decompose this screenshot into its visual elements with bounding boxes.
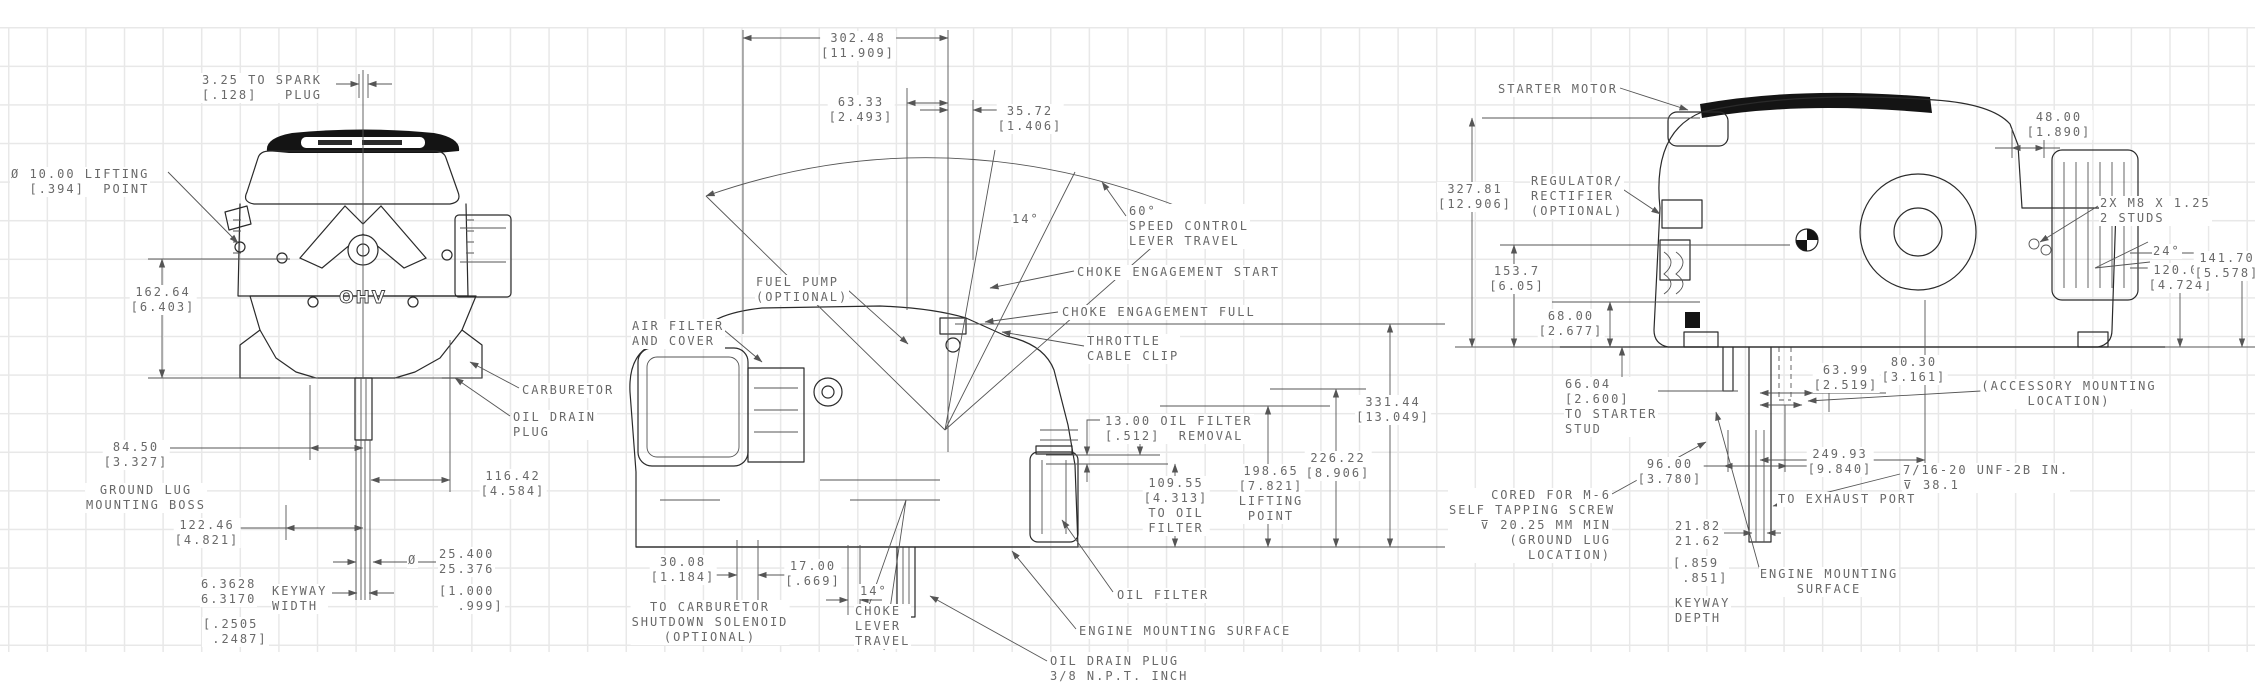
dim-30-08: 30.08 [1.184] — [650, 555, 717, 585]
diameter-symbol: Ø — [407, 553, 418, 568]
dim-lifting-point: Ø 10.00 LIFTING [.394] POINT — [10, 167, 150, 197]
dim-keyway-depth-mm: 21.82 21.62 — [1674, 519, 1722, 549]
dim-35-72: 35.72 [1.406] — [997, 104, 1064, 134]
dim-spark-plug: 3.25 TO SPARK [.128] PLUG — [201, 73, 323, 103]
label-choke-engagement-full: CHOKE ENGAGEMENT FULL — [1061, 305, 1257, 320]
angle-24: 24° — [2152, 244, 2182, 259]
dim-198-65: 198.65 [7.821] LIFTING POINT — [1238, 464, 1305, 524]
angle-14-top: 14° — [1011, 212, 1041, 227]
label-to-exhaust-port: TO EXHAUST PORT — [1777, 492, 1917, 507]
dim-48-00: 48.00 [1.890] — [2026, 110, 2093, 140]
label-keyway-width: KEYWAY WIDTH — [271, 584, 328, 614]
dim-226-22: 226.22 [8.906] — [1305, 451, 1372, 481]
ohv-badge: OHV — [339, 288, 387, 308]
dim-302-48: 302.48 [11.909] — [820, 31, 896, 61]
dim-122-46: 122.46 [4.821] — [174, 518, 241, 548]
dim-162-64: 162.64 [6.403] — [130, 285, 197, 315]
label-air-filter-cover: AIR FILTER AND COVER — [631, 319, 725, 349]
label-oil-filter: OIL FILTER — [1116, 588, 1210, 603]
label-choke-engagement-start: CHOKE ENGAGEMENT START — [1076, 265, 1281, 280]
dim-80-30: 80.30 [3.161] — [1881, 355, 1948, 385]
dim-63-33: 63.33 [2.493] — [828, 95, 895, 125]
dim-331-44: 331.44 [13.049] — [1355, 395, 1431, 425]
label-engine-mounting-surface-middle: ENGINE MOUNTING SURFACE — [1078, 624, 1292, 639]
dim-keyway-depth-in: [.859 .851] — [1672, 556, 1729, 586]
label-accessory-mounting: (ACCESSORY MOUNTING LOCATION) — [1980, 379, 2157, 409]
label-engine-mounting-surface-right: ENGINE MOUNTING SURFACE — [1759, 567, 1899, 597]
label-speed-control-travel: 60° SPEED CONTROL LEVER TRAVEL — [1128, 204, 1250, 249]
dim-96-00: 96.00 [3.780] — [1637, 457, 1704, 487]
angle-14-bottom: 14° — [859, 584, 889, 599]
label-oil-drain-plug-left: OIL DRAIN PLUG — [512, 410, 597, 440]
dim-oil-filter-removal: 13.00 OIL FILTER [.512] REMOVAL — [1104, 414, 1254, 444]
dim-153-7: 153.7 [6.05] — [1488, 264, 1545, 294]
label-oil-drain-plug-middle: OIL DRAIN PLUG 3/8 N.P.T. INCH — [1049, 654, 1189, 684]
label-unf-tapped-hole: 7/16-20 UNF-2B IN. ⊽ 38.1 — [1902, 463, 2070, 493]
label-m8-studs: 2X M8 X 1.25 2 STUDS — [2099, 196, 2212, 226]
middle-view-art — [630, 306, 1078, 640]
label-cored-m6-screw: CORED FOR M-6 SELF TAPPING SCREW ⊽ 20.25… — [1448, 488, 1612, 563]
dim-keyway-width-in: [.2505 .2487] — [202, 617, 269, 647]
label-carburetor: CARBURETOR — [521, 383, 615, 398]
dim-249-93: 249.93 [9.840] — [1807, 447, 1874, 477]
drawing-sheet: OHV — [0, 0, 2255, 700]
label-regulator-rectifier: REGULATOR/ RECTIFIER (OPTIONAL) — [1530, 174, 1624, 219]
dim-63-99: 63.99 [2.519] — [1813, 363, 1880, 393]
dim-327-81: 327.81 [12.906] — [1437, 182, 1513, 212]
label-throttle-cable-clip: THROTTLE CABLE CLIP — [1086, 334, 1180, 364]
label-fuel-pump: FUEL PUMP (OPTIONAL) — [755, 275, 849, 305]
dim-shaft-diameter-in: [1.000 .999] — [438, 584, 505, 614]
label-choke-lever-travel: CHOKE LEVER TRAVEL — [854, 604, 911, 649]
dim-keyway-width-mm: 6.3628 6.3170 — [200, 577, 257, 607]
label-to-carburetor-solenoid: TO CARBURETOR SHUTDOWN SOLENOID (OPTIONA… — [631, 600, 790, 645]
dim-109-55: 109.55 [4.313] TO OIL FILTER — [1143, 476, 1210, 536]
label-ground-lug-boss: GROUND LUG MOUNTING BOSS — [85, 483, 207, 513]
label-keyway-depth: KEYWAY DEPTH — [1674, 596, 1731, 626]
dim-shaft-diameter-mm: 25.400 25.376 — [438, 547, 495, 577]
dim-68-00: 68.00 [2.677] — [1538, 309, 1605, 339]
dim-141-70: 141.70 [5.578] — [2194, 251, 2255, 281]
dim-116-42: 116.42 [4.584] — [480, 469, 547, 499]
dim-17-00: 17.00 [.669] — [784, 559, 841, 589]
left-view-art: OHV — [225, 70, 511, 600]
dim-84-50: 84.50 [3.327] — [103, 440, 170, 470]
label-starter-motor: STARTER MOTOR — [1497, 82, 1619, 97]
dim-66-04-starter-stud: 66.04 [2.600] TO STARTER STUD — [1564, 377, 1658, 437]
